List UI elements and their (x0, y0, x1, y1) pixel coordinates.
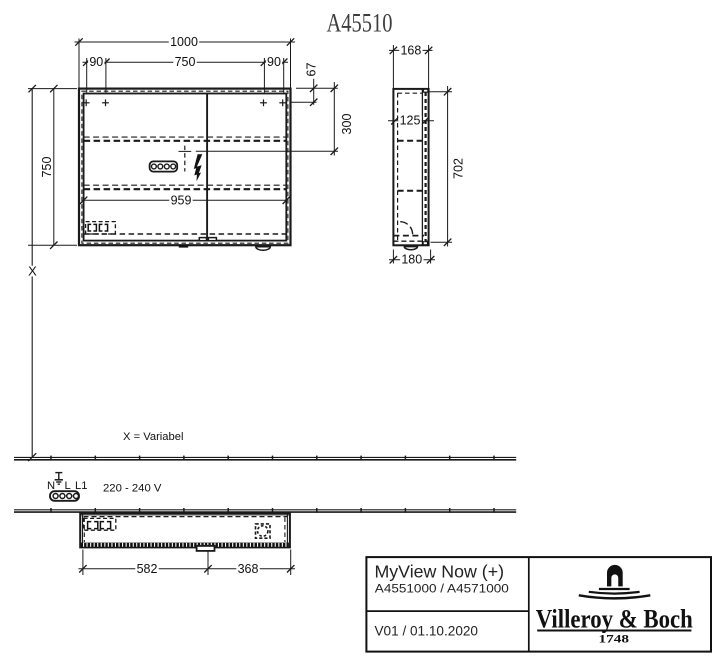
svg-text:MyView Now (+): MyView Now (+) (375, 562, 505, 582)
svg-text:A4551000 / A4571000: A4551000 / A4571000 (375, 582, 509, 596)
svg-text:V01 / 01.10.2020: V01 / 01.10.2020 (375, 623, 479, 638)
svg-text:X: X (28, 264, 37, 279)
svg-text:959: 959 (171, 193, 192, 207)
svg-text:702: 702 (452, 158, 466, 179)
svg-text:90: 90 (89, 55, 103, 69)
svg-text:750: 750 (175, 55, 196, 69)
svg-text:180: 180 (401, 253, 422, 267)
svg-text:X = Variabel: X = Variabel (123, 431, 183, 443)
svg-text:Villeroy & Boch: Villeroy & Boch (536, 604, 693, 633)
svg-text:368: 368 (238, 562, 259, 576)
svg-text:300: 300 (340, 114, 354, 135)
svg-text:A45510: A45510 (327, 9, 393, 38)
svg-text:220 - 240 V: 220 - 240 V (103, 482, 162, 494)
svg-text:582: 582 (137, 562, 158, 576)
svg-text:L1: L1 (75, 480, 87, 492)
svg-text:1748: 1748 (599, 633, 630, 645)
svg-text:750: 750 (40, 157, 54, 178)
svg-text:125: 125 (400, 114, 421, 128)
svg-text:L: L (65, 480, 71, 492)
svg-text:1000: 1000 (170, 35, 198, 49)
svg-text:N: N (47, 480, 55, 492)
svg-text:67: 67 (304, 63, 318, 77)
svg-text:90: 90 (267, 55, 281, 69)
svg-text:168: 168 (400, 43, 421, 57)
